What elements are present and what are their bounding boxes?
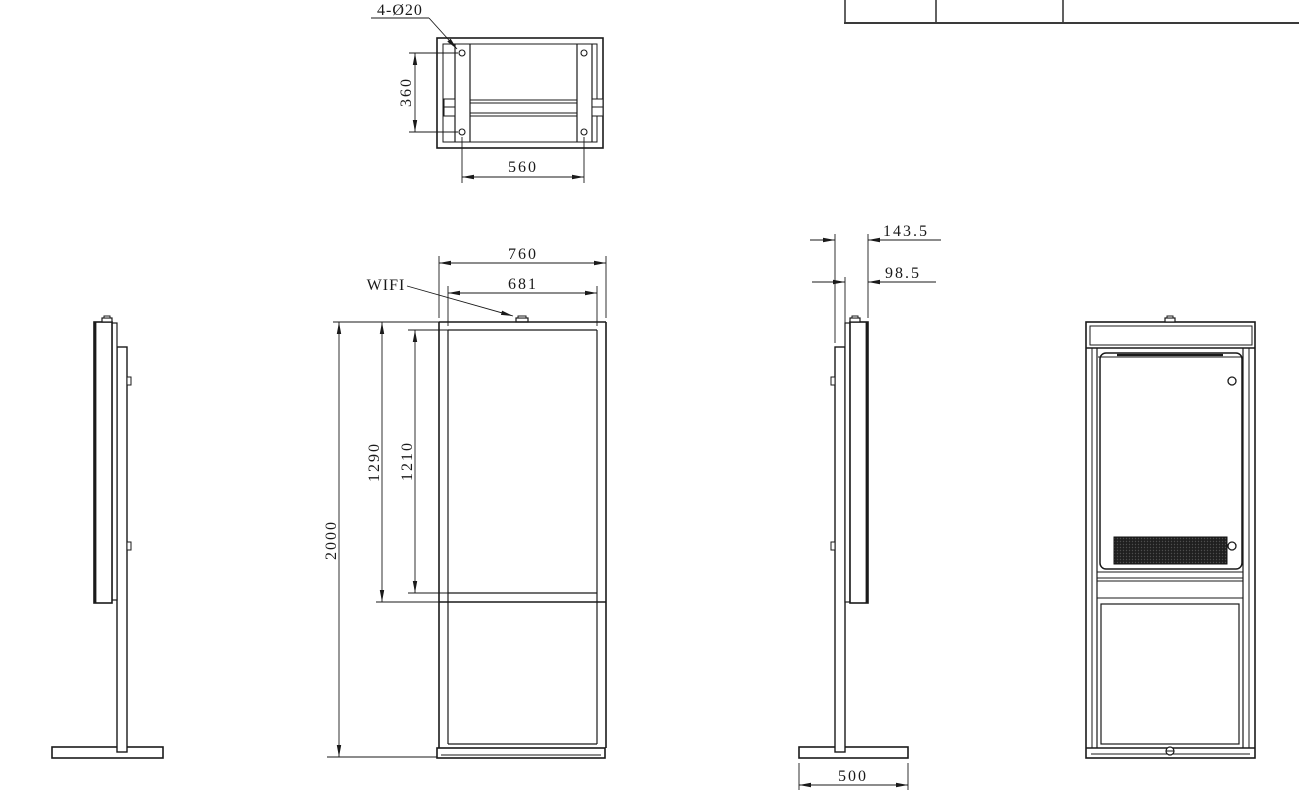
side-view-pole	[835, 347, 845, 752]
left-side-view	[52, 316, 163, 758]
door-lock-screw-bottom	[1228, 542, 1236, 550]
left-view-display-panel	[94, 322, 112, 603]
title-block	[844, 0, 1299, 23]
left-view-wifi-antenna	[102, 316, 112, 322]
hole-callout: 4-Ø20	[371, 2, 457, 49]
hole-callout-label: 4-Ø20	[377, 2, 423, 19]
wifi-callout: WIFI	[367, 277, 513, 316]
left-view-base-plate	[52, 747, 163, 758]
dim-560-label: 560	[508, 159, 538, 176]
front-view-body	[437, 322, 606, 758]
back-view-door-header	[1098, 355, 1243, 357]
dim-1290-label: 1290	[366, 442, 383, 482]
dim-500-label: 500	[838, 768, 868, 785]
dim-2000-label: 2000	[323, 520, 340, 560]
side-view-wifi-antenna	[850, 316, 860, 322]
dim-500: 500	[799, 763, 908, 790]
side-bracket-left	[444, 99, 455, 116]
front-view-wifi-antenna	[516, 316, 528, 322]
door-lock-screw-top	[1228, 377, 1236, 385]
side-view-base-plate	[799, 747, 908, 758]
dim-143-5-label: 143.5	[883, 223, 929, 240]
dim-360: 360	[398, 53, 458, 132]
dim-1210: 1210	[399, 330, 448, 593]
dim-98-5-label: 98.5	[885, 265, 921, 282]
left-view-pole	[117, 347, 127, 752]
right-side-view: 143.5 98.5 500	[799, 223, 941, 790]
top-view: 4-Ø20 360 560	[371, 2, 603, 183]
anchor-bolt-holes	[459, 50, 587, 135]
side-view-display-panel	[850, 322, 868, 603]
dim-98-5: 98.5	[812, 265, 936, 345]
drawing-sheet: 4-Ø20 360 560	[0, 0, 1299, 795]
top-view-frame	[437, 38, 603, 148]
front-view: WIFI 760 681 2000 1290	[323, 246, 606, 758]
dim-1210-label: 1210	[399, 441, 416, 481]
front-view-base-band	[437, 748, 605, 758]
vent-grille	[1114, 537, 1227, 564]
dim-143-5: 143.5	[810, 223, 941, 343]
back-view	[1086, 316, 1255, 758]
dim-560: 560	[462, 137, 584, 183]
dim-2000: 2000	[323, 322, 439, 757]
dim-681-label: 681	[508, 276, 538, 293]
side-bracket-right	[592, 99, 603, 116]
back-view-wifi-knob	[1165, 316, 1175, 322]
dim-760-label: 760	[508, 246, 538, 263]
drawing-canvas: 4-Ø20 360 560	[0, 0, 1299, 795]
wifi-label: WIFI	[367, 277, 406, 294]
dim-360-label: 360	[398, 77, 415, 107]
